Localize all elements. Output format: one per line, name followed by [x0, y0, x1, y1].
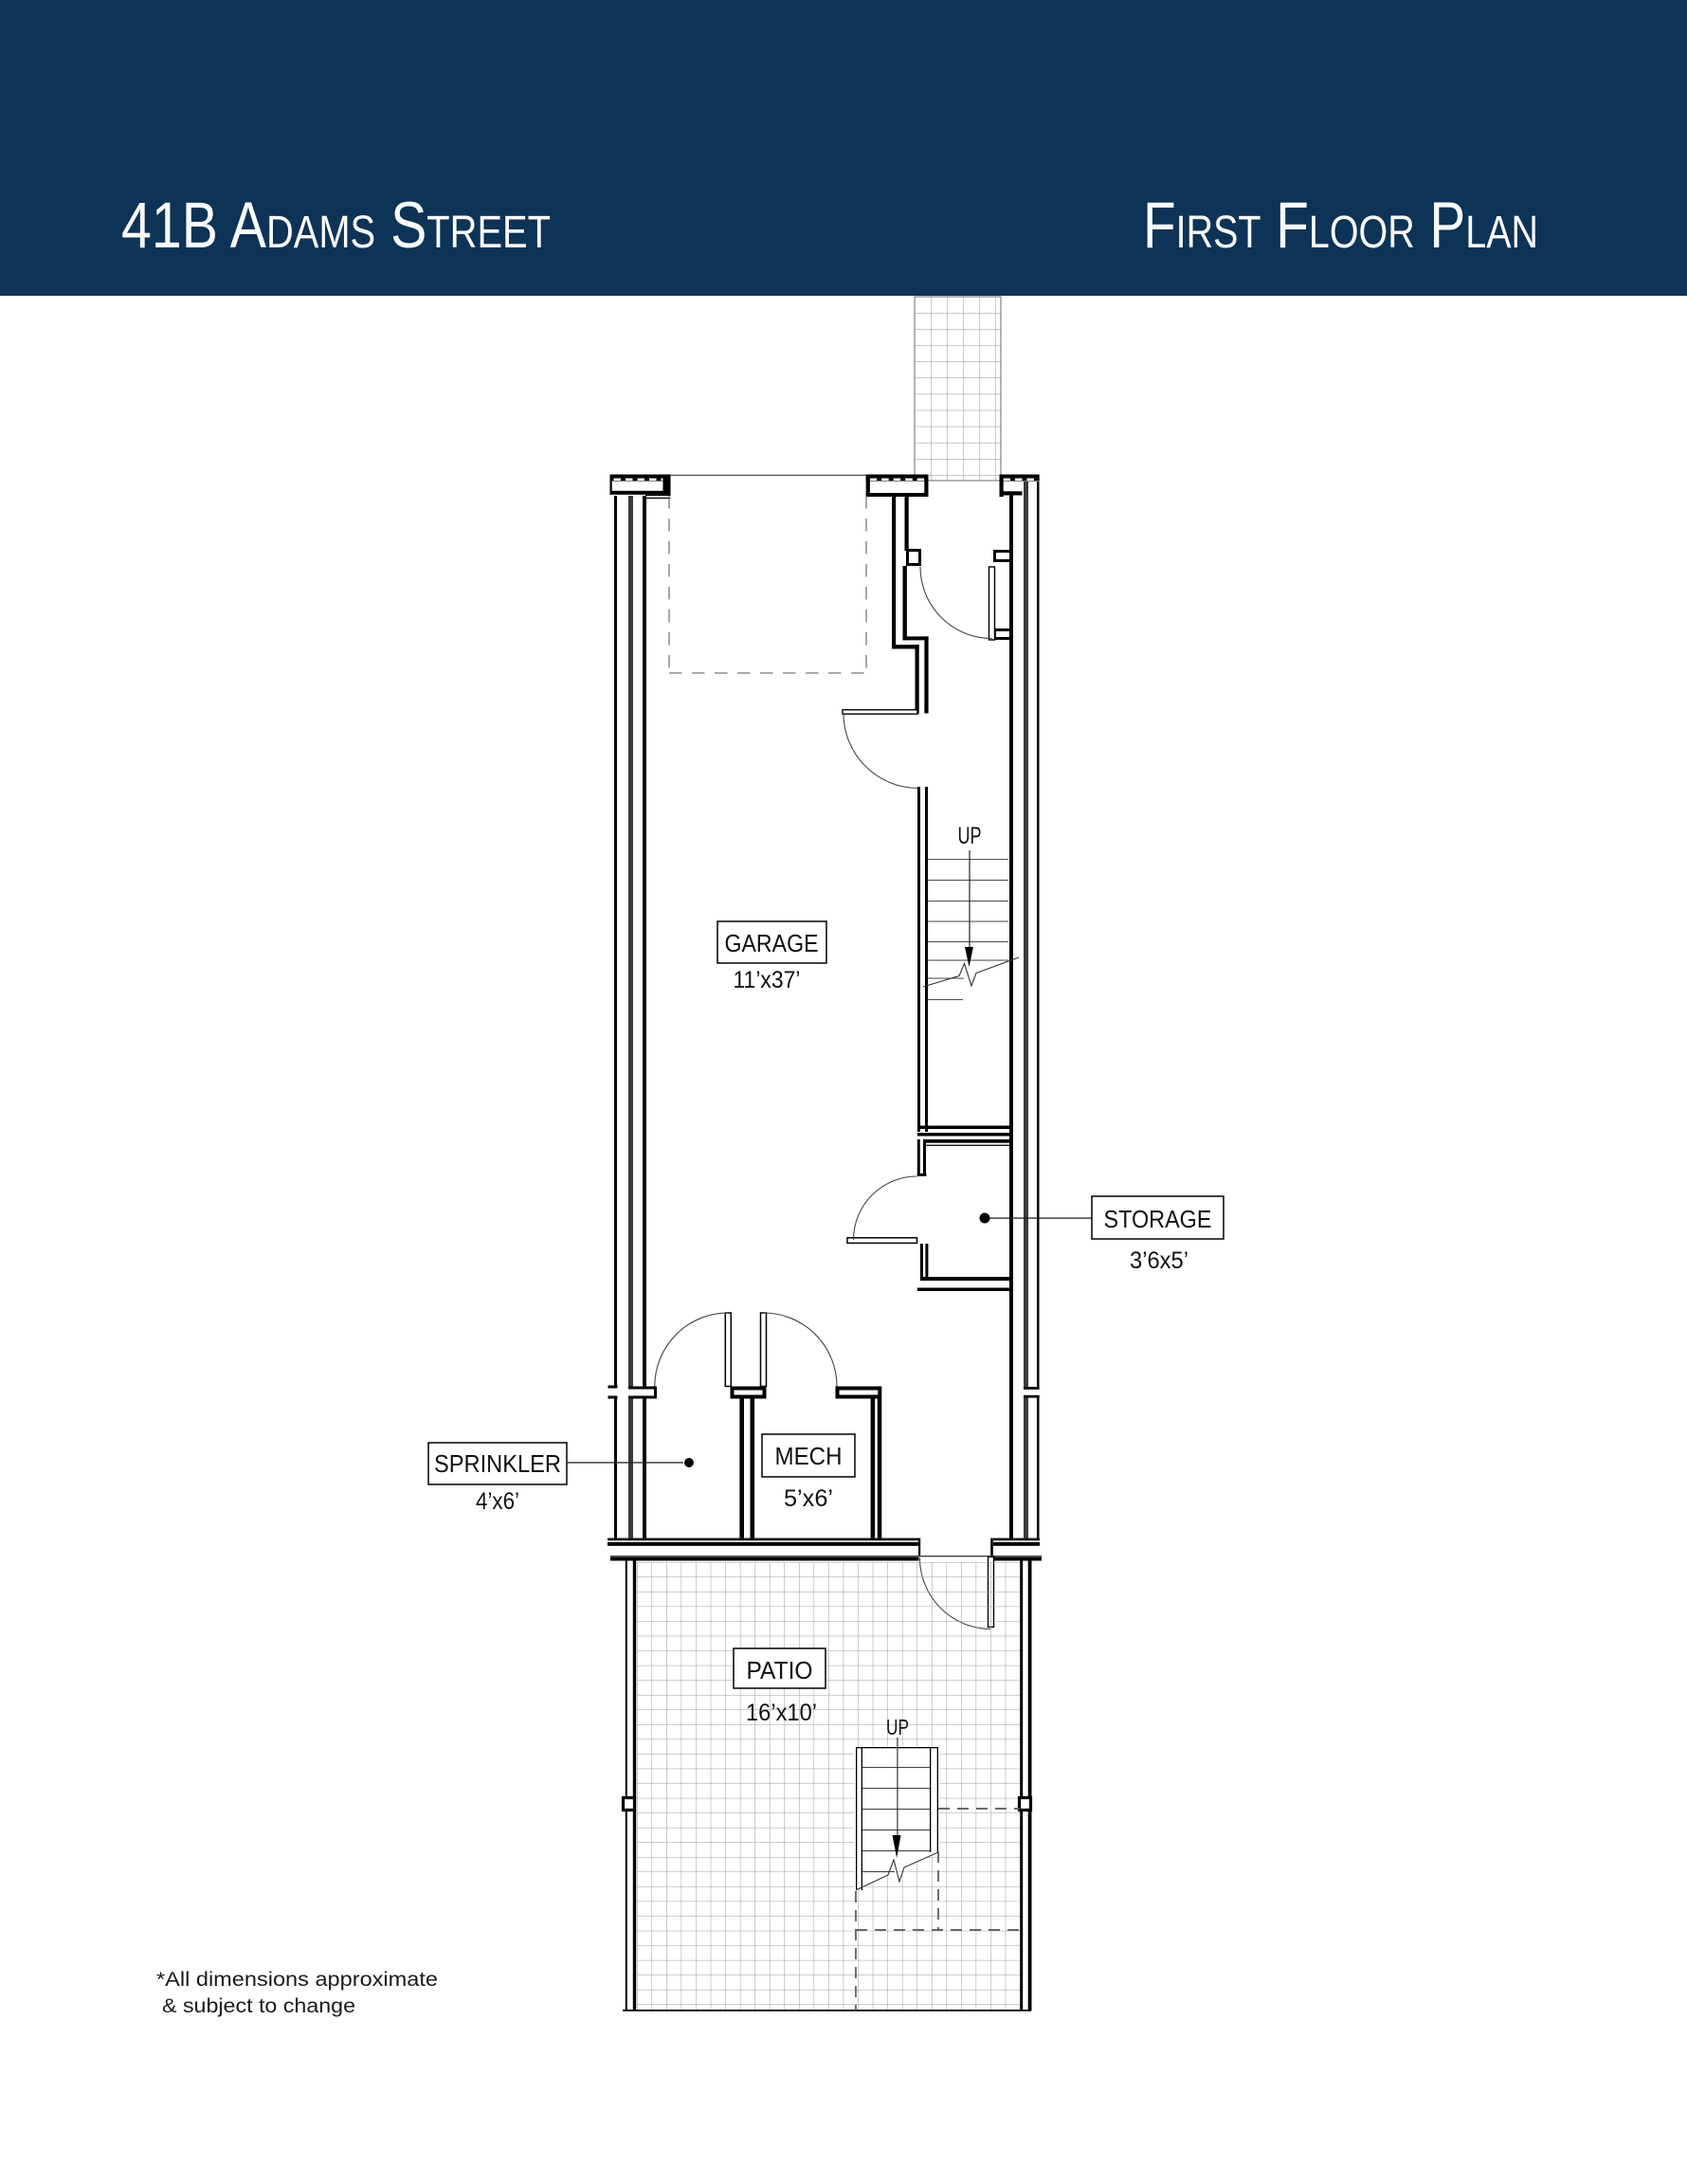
svg-text:16’x10’: 16’x10’	[746, 1700, 817, 1726]
svg-text:MECH: MECH	[775, 1442, 843, 1470]
svg-text:5’x6’: 5’x6’	[784, 1485, 833, 1512]
svg-text:3’6x5’: 3’6x5’	[1130, 1247, 1188, 1274]
svg-text:*All dimensions approximate: *All dimensions approximate	[156, 1969, 438, 1991]
svg-text:UP: UP	[958, 823, 982, 849]
svg-text:4’x6’: 4’x6’	[476, 1488, 519, 1515]
svg-text:STORAGE: STORAGE	[1104, 1205, 1212, 1233]
svg-text:41B Adams Street: 41B Adams Street	[121, 189, 551, 262]
svg-text:SPRINKLER: SPRINKLER	[434, 1449, 561, 1478]
svg-text:GARAGE: GARAGE	[725, 929, 819, 957]
svg-text:First Floor Plan: First Floor Plan	[1143, 189, 1538, 262]
svg-text:& subject to change: & subject to change	[162, 1995, 355, 2017]
svg-text:11’x37’: 11’x37’	[734, 967, 801, 993]
svg-text:UP: UP	[886, 1715, 909, 1739]
svg-text:PATIO: PATIO	[747, 1656, 813, 1684]
